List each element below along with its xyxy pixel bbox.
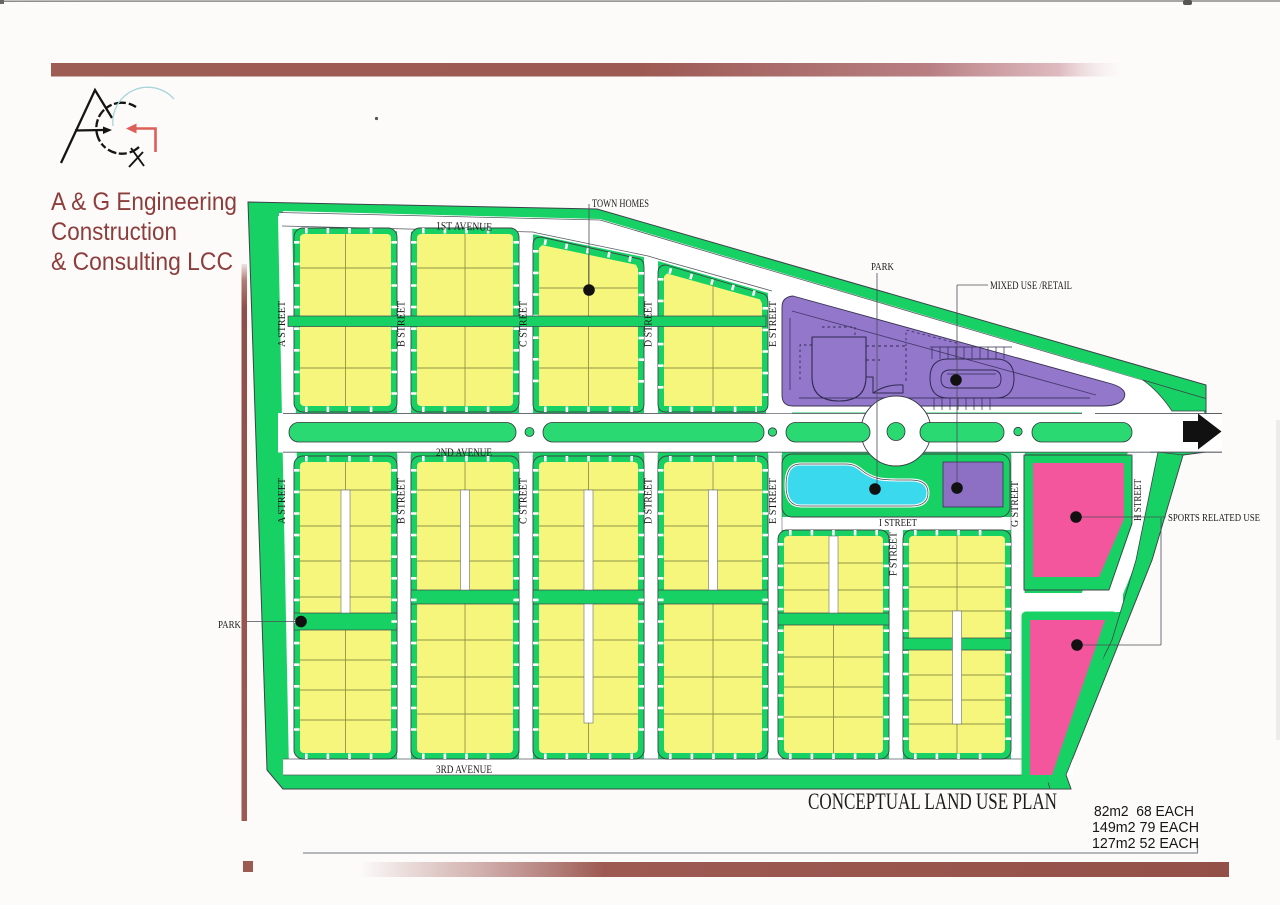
svg-text:2ND AVENUE: 2ND AVENUE (436, 447, 492, 459)
svg-text:E STREET: E STREET (768, 477, 779, 524)
svg-text:Construction: Construction (51, 218, 177, 246)
svg-text:MIXED USE /RETAIL: MIXED USE /RETAIL (990, 280, 1072, 292)
svg-text:PARK: PARK (218, 619, 241, 631)
svg-text:127m2 52 EACH: 127m2 52 EACH (1092, 835, 1199, 852)
svg-text:C STREET: C STREET (519, 477, 530, 524)
svg-text:D STREET: D STREET (644, 300, 655, 347)
svg-text:G STREET: G STREET (1010, 480, 1021, 527)
svg-text:D STREET: D STREET (644, 477, 655, 524)
svg-text:B STREET: B STREET (397, 477, 408, 524)
svg-text:A STREET: A STREET (277, 477, 288, 524)
svg-text:B STREET: B STREET (397, 300, 408, 347)
svg-text:SPORTS RELATED USE: SPORTS RELATED USE (1168, 512, 1260, 524)
svg-text:82m2 68 EACH: 82m2 68 EACH (1094, 803, 1194, 820)
svg-text:TOWN HOMES: TOWN HOMES (592, 198, 649, 210)
svg-text:E STREET: E STREET (768, 300, 779, 347)
svg-text:1ST AVENUE: 1ST AVENUE (436, 220, 492, 233)
svg-text:A STREET: A STREET (277, 300, 288, 347)
svg-text:& Consulting LCC: & Consulting LCC (51, 248, 233, 276)
svg-text:F STREET: F STREET (889, 531, 900, 576)
svg-text:3RD AVENUE: 3RD AVENUE (436, 764, 492, 776)
svg-text:C STREET: C STREET (519, 300, 530, 347)
svg-text:PARK: PARK (871, 261, 894, 273)
svg-text:H STREET: H STREET (1133, 479, 1144, 521)
svg-text:I STREET: I STREET (879, 517, 917, 529)
svg-text:A & G Engineering: A & G Engineering (51, 188, 237, 216)
svg-text:149m2 79 EACH: 149m2 79 EACH (1092, 819, 1199, 836)
svg-text:CONCEPTUAL LAND USE PLAN: CONCEPTUAL LAND USE PLAN (808, 789, 1057, 814)
